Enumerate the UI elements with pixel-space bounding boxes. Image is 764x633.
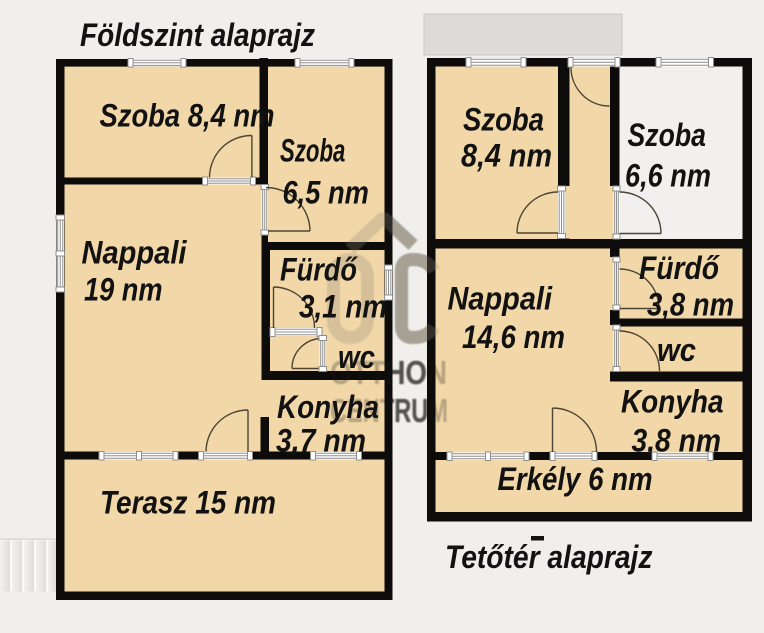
svg-text:wc: wc	[657, 332, 696, 368]
svg-text:Földszint alaprajz: Földszint alaprajz	[80, 17, 315, 53]
svg-text:Szoba: Szoba	[280, 133, 345, 169]
svg-text:6,6 nm: 6,6 nm	[625, 158, 711, 194]
svg-text:Nappali: Nappali	[82, 235, 188, 271]
svg-text:Konyha: Konyha	[277, 389, 379, 425]
svg-text:Konyha: Konyha	[621, 384, 724, 420]
svg-text:Nappali: Nappali	[448, 281, 554, 317]
svg-text:Fürdő: Fürdő	[639, 250, 720, 286]
svg-text:3,8 nm: 3,8 nm	[647, 287, 734, 323]
svg-text:Szoba: Szoba	[463, 102, 544, 138]
svg-text:3,7 nm: 3,7 nm	[276, 423, 366, 459]
svg-text:Erkély 6 nm: Erkély 6 nm	[498, 461, 653, 497]
svg-text:6,5 nm: 6,5 nm	[283, 175, 369, 211]
svg-text:Tetőtér alaprajz: Tetőtér alaprajz	[445, 539, 653, 575]
svg-text:wc: wc	[338, 339, 375, 375]
svg-text:Fürdő: Fürdő	[280, 252, 358, 288]
svg-text:14,6 nm: 14,6 nm	[462, 319, 565, 355]
svg-text:Szoba 8,4 nm: Szoba 8,4 nm	[100, 98, 275, 134]
svg-text:3,1 nm: 3,1 nm	[299, 289, 387, 325]
svg-text:Terasz 15 nm: Terasz 15 nm	[100, 485, 276, 521]
svg-text:3,8 nm: 3,8 nm	[632, 423, 722, 459]
svg-text:19 nm: 19 nm	[84, 272, 163, 308]
svg-text:Szoba: Szoba	[628, 117, 706, 153]
svg-text:8,4 nm: 8,4 nm	[461, 138, 552, 174]
